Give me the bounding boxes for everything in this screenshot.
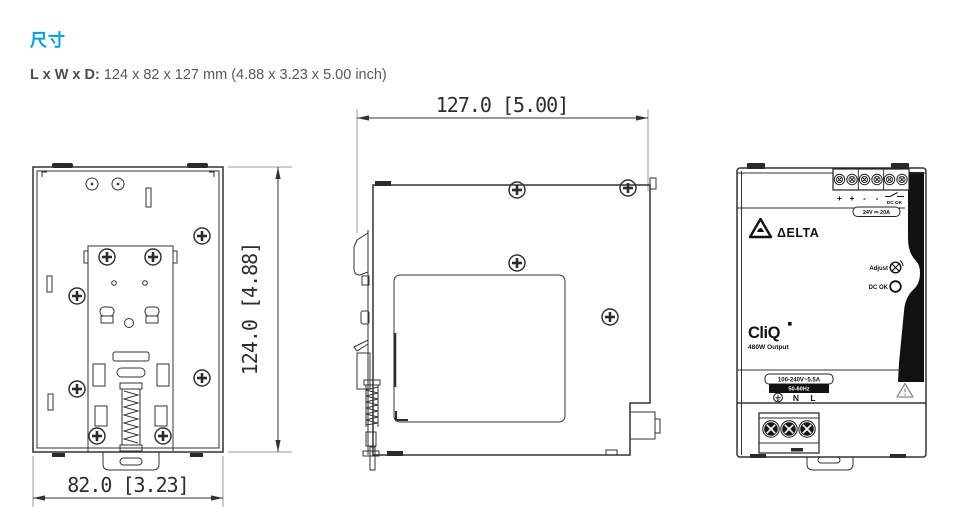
vent-slot-icon <box>48 394 53 410</box>
vent-slot-icon <box>47 276 52 292</box>
screw-icon <box>620 180 636 196</box>
foot-tab-icon <box>52 453 65 457</box>
power-label: 480W Output <box>748 344 789 351</box>
back-body-outline <box>33 167 223 452</box>
screw-icon <box>99 249 115 265</box>
warning-icon <box>897 384 913 398</box>
screw-icon <box>194 370 210 386</box>
led-icon <box>890 281 901 292</box>
screw-icon <box>69 381 85 397</box>
terminal-screw-icon <box>834 174 844 184</box>
screw-icon <box>194 228 210 244</box>
height-dimension: 124.0 [4.88] <box>228 167 292 452</box>
ground-icon <box>774 393 783 402</box>
top-lug-icon <box>650 178 656 189</box>
input-terminal-block <box>759 413 819 453</box>
input-terminal-n-label: N <box>793 393 799 403</box>
terminal-screw-icon <box>847 174 857 184</box>
mount-tab-icon <box>747 163 765 169</box>
output-terminal-block <box>833 169 909 190</box>
label-recess <box>394 275 565 422</box>
page-title: 尺寸 <box>30 26 66 51</box>
foot-tab-icon <box>190 453 203 457</box>
terminal-screw-icon <box>884 174 894 184</box>
screw-icon <box>89 428 105 444</box>
terminal-screw-icon <box>872 174 882 184</box>
screw-icon <box>69 288 85 304</box>
input-rating-label: 100-240V~5.5A <box>778 377 821 383</box>
spring-icon <box>364 380 380 427</box>
depth-dim-label: 127.0 [5.00] <box>436 95 569 117</box>
foot-tab-icon <box>387 451 403 456</box>
back-body-inner <box>37 171 219 448</box>
terminal-screw-icon <box>897 174 907 184</box>
output-rating-badge: 24V ⎓ 20A <box>853 207 900 217</box>
dimension-sheet: 尺寸 L x W x D: 124 x 82 x 127 mm (4.88 x … <box>0 0 972 529</box>
front-view-drawing: + + - - DC OK 24V ⎓ 20A ΔELTA Adjust DC … <box>733 153 933 483</box>
input-rating-badge: 100-240V~5.5A <box>765 374 833 384</box>
delta-logo-icon <box>750 219 771 237</box>
screw-icon <box>602 309 618 325</box>
connector-icon <box>630 412 660 439</box>
mount-tab-icon <box>52 163 73 168</box>
dc-ok-led-label: DC OK <box>869 285 889 291</box>
side-view-drawing: 127.0 [5.00] <box>330 95 670 485</box>
din-clip <box>807 457 853 470</box>
spring-icon <box>120 383 142 451</box>
terminal-screw-icon <box>781 421 797 437</box>
output-rating-label: 24V ⎓ 20A <box>863 210 890 216</box>
input-terminal-l-label: L <box>810 393 815 403</box>
mount-tab-icon <box>891 163 909 169</box>
terminal-screw-icon <box>799 421 815 437</box>
terminal-screw-icon <box>859 174 869 184</box>
adjust-label: Adjust <box>869 266 888 272</box>
width-dimension: 82.0 [3.23] <box>33 456 223 507</box>
potentiometer-icon <box>890 261 903 273</box>
screw-icon <box>145 249 161 265</box>
mount-tab-icon <box>187 163 208 168</box>
back-view-drawing: 124.0 [4.88] 82.0 [3.23] <box>20 155 310 515</box>
screw-icon <box>155 428 171 444</box>
vent-slot-icon <box>146 188 151 207</box>
side-body-outline <box>373 185 650 455</box>
screw-icon <box>509 255 525 271</box>
size-value: 124 x 82 x 127 mm (4.88 x 3.23 x 5.00 in… <box>104 67 387 83</box>
input-frequency-badge: 50-60Hz <box>769 384 829 393</box>
terminal-screw-icon <box>763 421 779 437</box>
terminal-polarity-label: + <box>850 193 855 203</box>
size-label: L x W x D: <box>30 67 100 83</box>
height-dim-label: 124.0 [4.88] <box>238 243 262 376</box>
dc-ok-contact-label: DC OK <box>887 200 903 206</box>
relay-contact-icon <box>885 193 904 197</box>
width-dim-label: 82.0 [3.23] <box>67 473 188 497</box>
foot-tab-icon <box>890 454 906 458</box>
series-label: CliQ <box>748 324 781 342</box>
input-frequency-label: 50-60Hz <box>788 387 809 393</box>
size-line: L x W x D: 124 x 82 x 127 mm (4.88 x 3.2… <box>30 67 387 83</box>
din-clip-profile <box>354 230 380 470</box>
mount-tab-icon <box>375 181 391 186</box>
depth-dimension: 127.0 [5.00] <box>357 95 648 233</box>
trademark-mark <box>788 322 792 326</box>
terminal-polarity-label: - <box>876 193 879 203</box>
foot-tab-icon <box>750 454 766 458</box>
brand-label: ΔELTA <box>777 226 819 240</box>
terminal-polarity-label: + <box>837 193 842 203</box>
terminal-polarity-label: - <box>863 193 866 203</box>
rivet-icon <box>86 178 124 190</box>
